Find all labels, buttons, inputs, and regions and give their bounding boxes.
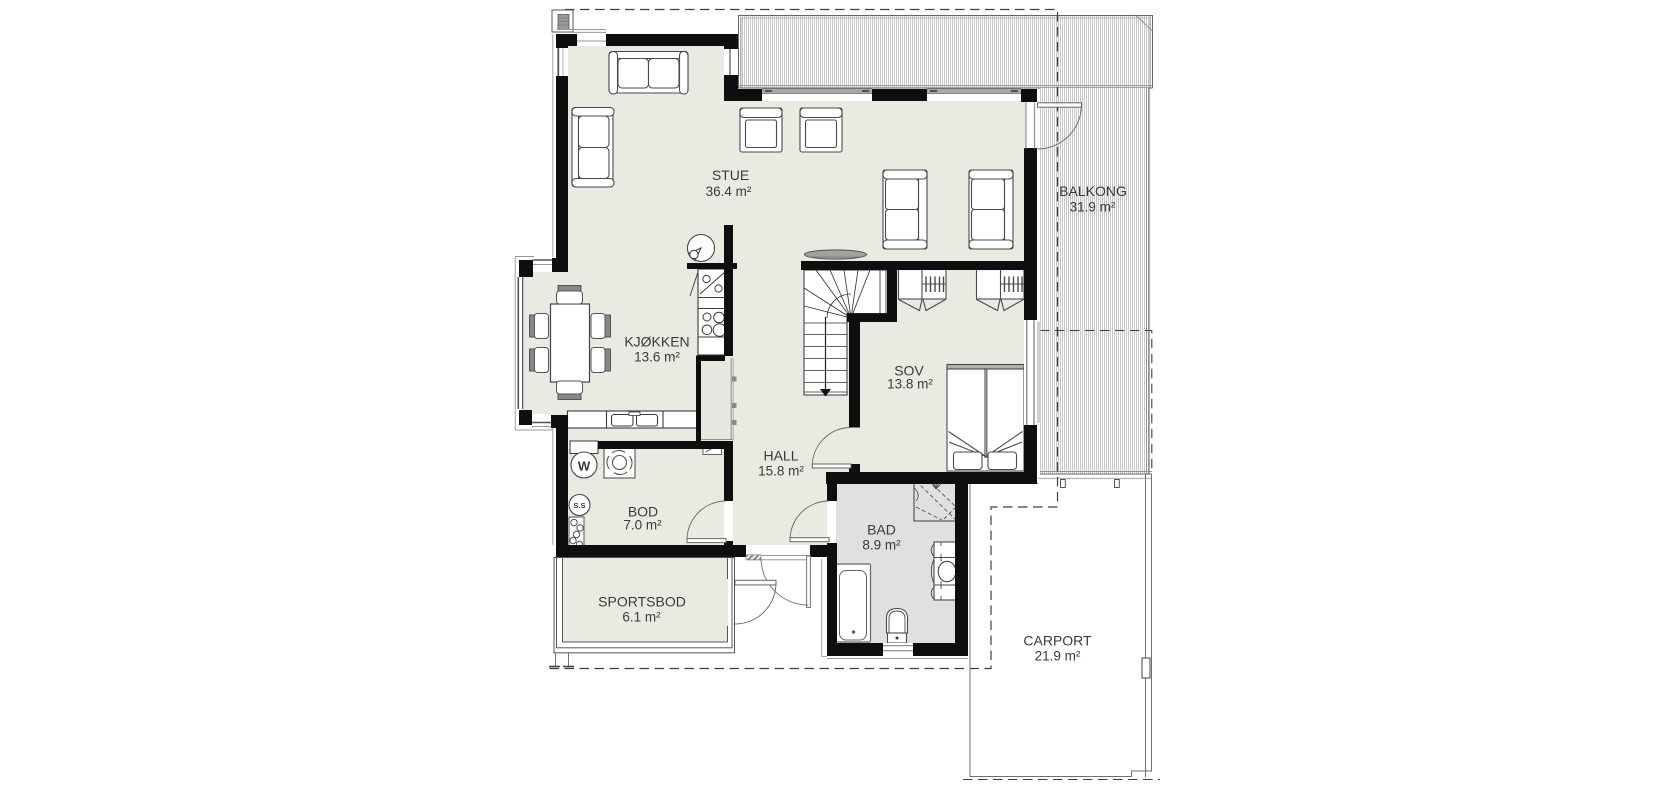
svg-text:8.9 m²: 8.9 m² [862,538,901,553]
svg-text:13.6 m²: 13.6 m² [634,350,680,365]
svg-text:36.4 m²: 36.4 m² [706,184,752,199]
svg-text:BALKONG: BALKONG [1059,183,1127,199]
svg-text:CARPORT: CARPORT [1023,633,1092,649]
svg-text:W: W [578,459,591,474]
svg-text:13.8 m²: 13.8 m² [887,377,933,392]
svg-text:SPORTSBOD: SPORTSBOD [598,594,686,610]
svg-text:KJØKKEN: KJØKKEN [624,334,689,350]
svg-text:15.8 m²: 15.8 m² [758,464,804,479]
svg-text:HALL: HALL [763,448,798,464]
svg-text:6.1 m²: 6.1 m² [622,610,661,625]
svg-text:S.S: S.S [573,501,585,510]
svg-text:STUE: STUE [712,167,749,183]
svg-text:21.9 m²: 21.9 m² [1035,649,1081,664]
svg-text:BAD: BAD [867,522,896,538]
svg-text:7.0 m²: 7.0 m² [623,518,662,533]
svg-text:31.9 m²: 31.9 m² [1070,200,1116,215]
